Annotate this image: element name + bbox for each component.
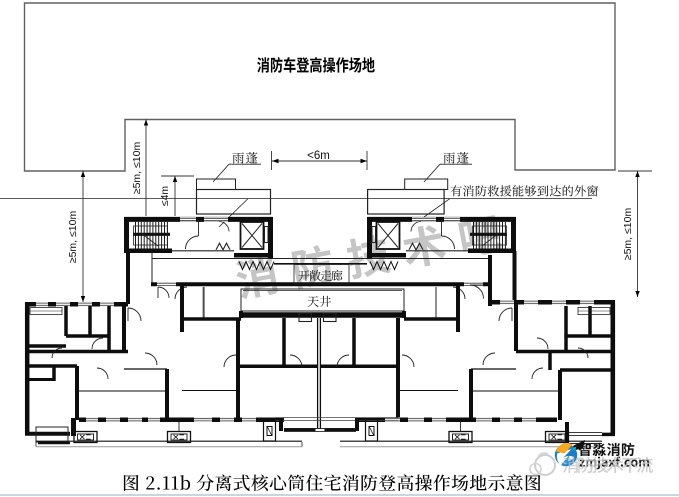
svg-text:≥5m, ≤10m: ≥5m, ≤10m (131, 142, 143, 195)
svg-text:<6m: <6m (307, 150, 330, 162)
svg-text:≤4m: ≤4m (159, 186, 171, 207)
svg-text:≥5m, ≤10m: ≥5m, ≤10m (622, 208, 634, 261)
svg-text:≥5m, ≤10m: ≥5m, ≤10m (67, 211, 79, 264)
